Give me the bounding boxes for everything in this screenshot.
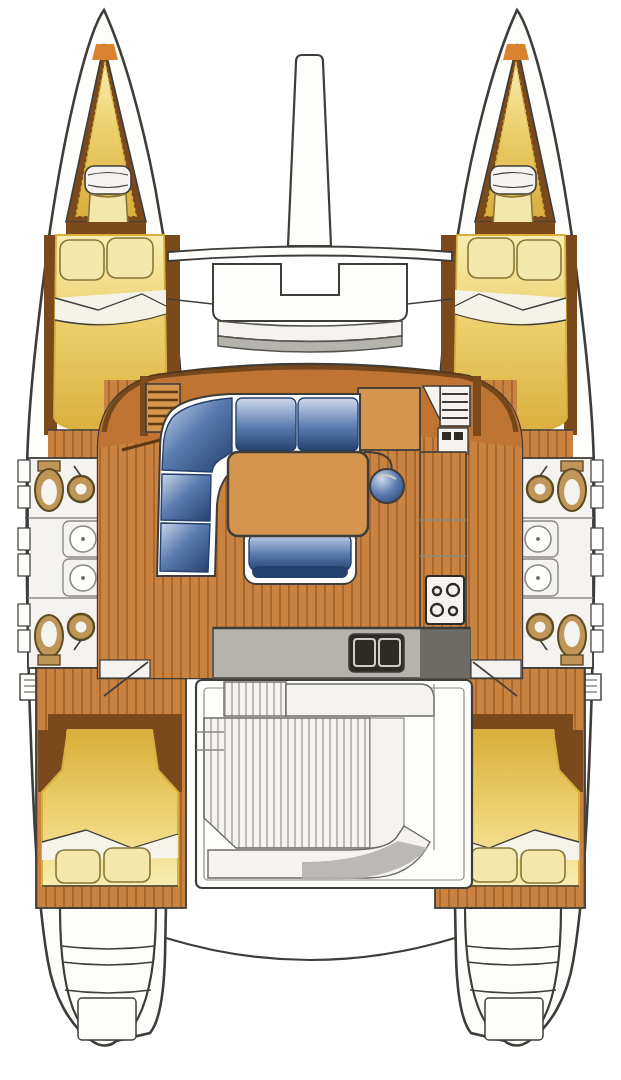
teak-slats (204, 718, 370, 848)
pillow (56, 850, 100, 883)
drain (81, 537, 85, 541)
settee-cushion (160, 523, 210, 572)
pillow (107, 238, 153, 278)
drain (81, 576, 85, 580)
swim-step (78, 998, 136, 1040)
bow-fitting (92, 44, 118, 60)
cockpit-bench (286, 684, 434, 716)
foredeck-locker (213, 264, 407, 321)
forepeak-bulkhead (66, 222, 146, 235)
nav-console (438, 428, 468, 454)
forepeak-cushion (88, 194, 128, 226)
sink-icon (349, 634, 404, 672)
bowsprit (288, 55, 331, 246)
settee-cushion (236, 398, 296, 451)
teak-slats (224, 682, 286, 716)
pillow (104, 848, 150, 882)
cockpit-bench (370, 718, 404, 848)
catamaran-floorplan-canvas (0, 0, 621, 1080)
galley-worktop-dark (420, 628, 470, 678)
aft-cabin (36, 668, 186, 908)
instrument (442, 432, 451, 440)
aft-beam-curve (166, 938, 455, 960)
saloon-cabinet (358, 388, 420, 450)
forepeak-bolster (85, 166, 131, 194)
cockpit (196, 680, 472, 888)
settee-cushion (298, 398, 358, 451)
stove-icon (426, 576, 464, 624)
heads-compartment (18, 458, 104, 668)
forward-beam (168, 247, 452, 262)
toilet-tank (38, 655, 60, 665)
saloon (98, 364, 522, 696)
instrument (454, 432, 463, 440)
hull-portlights (18, 460, 30, 652)
catamaran-floorplan (0, 0, 621, 1080)
bench-shadow (252, 566, 348, 578)
aft-bulkhead (48, 714, 182, 730)
pillow (60, 240, 104, 280)
settee-cushion (161, 474, 211, 521)
foredeck-structure (168, 55, 452, 352)
saloon-table (228, 452, 368, 536)
